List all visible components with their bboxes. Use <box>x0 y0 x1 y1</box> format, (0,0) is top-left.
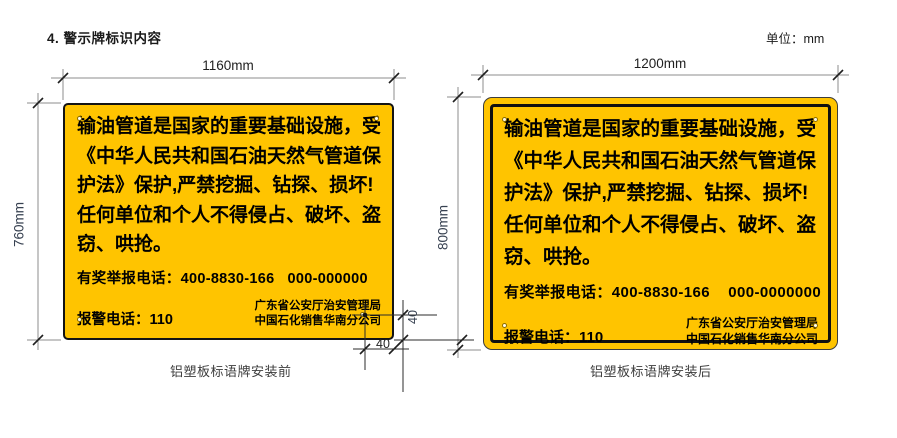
screw-hole <box>360 312 365 317</box>
caption-before: 铝塑板标语牌安装前 <box>170 361 292 380</box>
sign-text-line: 输油管道是国家的重要基础设施，受 <box>504 113 818 145</box>
sign1-top-dimension <box>51 69 406 100</box>
sign2-width-dimension: 1200mm <box>600 56 720 71</box>
sign1-left-ticks <box>33 98 43 345</box>
sign-bottom-row: 报警电话：110 广东省公安厅治安管理局 中国石化销售华南分公司 <box>77 299 381 329</box>
unit-label: 单位：mm <box>766 28 824 47</box>
org-line: 中国石化销售华南分公司 <box>686 331 818 347</box>
screw-hole <box>77 317 82 322</box>
sign-text-line: 护法》保护,严禁挖掘、钻探、损坏! <box>77 171 381 201</box>
sign2-left-dimension <box>447 87 481 358</box>
screw-hole <box>502 323 507 328</box>
screw-hole <box>374 116 379 121</box>
sign-text-line: 任何单位和个人不得侵占、破坏、盗 <box>77 201 381 231</box>
police-hotline: 报警电话：110 <box>504 326 603 347</box>
sign1-width-dimension: 1160mm <box>168 58 288 73</box>
sign2-left-ticks <box>453 92 463 355</box>
screw-hole <box>813 323 818 328</box>
hole-offset-vertical-dimension: 40 <box>406 297 420 337</box>
org-line: 广东省公安厅治安管理局 <box>686 315 818 331</box>
sign-body-text: 输油管道是国家的重要基础设施，受 《中华人民共和国石油天然气管道保 护法》保护,… <box>77 112 381 260</box>
sign1-height-dimension: 760mm <box>12 190 27 260</box>
sign1-left-dimension <box>27 93 61 350</box>
reward-hotline: 有奖举报电话：400-8830-166 000-0000000 <box>504 281 818 302</box>
sign-bottom-row: 报警电话：110 广东省公安厅治安管理局 中国石化销售华南分公司 <box>504 315 818 347</box>
warning-sign-after: 输油管道是国家的重要基础设施，受 《中华人民共和国石油天然气管道保 护法》保护,… <box>483 97 838 350</box>
screw-hole <box>77 116 82 121</box>
sign-text-line: 护法》保护,严禁挖掘、钻探、损坏! <box>504 177 818 209</box>
sign-text-line: 《中华人民共和国石油天然气管道保 <box>504 145 818 177</box>
sign2-top-ticks <box>478 70 843 80</box>
screw-hole <box>813 117 818 122</box>
sign1-top-ticks <box>58 73 399 83</box>
issuing-orgs: 广东省公安厅治安管理局 中国石化销售华南分公司 <box>686 315 818 347</box>
drawing-page: 4. 警示牌标识内容 单位：mm <box>0 0 897 438</box>
sign-text-line: 输油管道是国家的重要基础设施，受 <box>77 112 381 142</box>
sign-text-line: 任何单位和个人不得侵占、破坏、盗 <box>504 209 818 241</box>
sign-text-line: 《中华人民共和国石油天然气管道保 <box>77 142 381 172</box>
police-hotline: 报警电话：110 <box>77 308 173 329</box>
sign-inner-panel: 输油管道是国家的重要基础设施，受 《中华人民共和国石油天然气管道保 护法》保护,… <box>490 104 831 343</box>
sign-body-text: 输油管道是国家的重要基础设施，受 《中华人民共和国石油天然气管道保 护法》保护,… <box>504 113 818 273</box>
reward-hotline: 有奖举报电话：400-8830-166 000-000000 <box>77 267 381 288</box>
sign-text-line: 窃、哄抢。 <box>77 230 381 260</box>
warning-sign-before: 输油管道是国家的重要基础设施，受 《中华人民共和国石油天然气管道保 护法》保护,… <box>63 103 394 340</box>
hole-offset-horizontal-dimension: 40 <box>368 337 398 351</box>
caption-after: 铝塑板标语牌安装后 <box>590 361 712 380</box>
sign-text-line: 窃、哄抢。 <box>504 241 818 273</box>
screw-hole <box>502 117 507 122</box>
sign2-height-dimension: 800mm <box>436 193 451 263</box>
page-title: 4. 警示牌标识内容 <box>47 27 162 47</box>
